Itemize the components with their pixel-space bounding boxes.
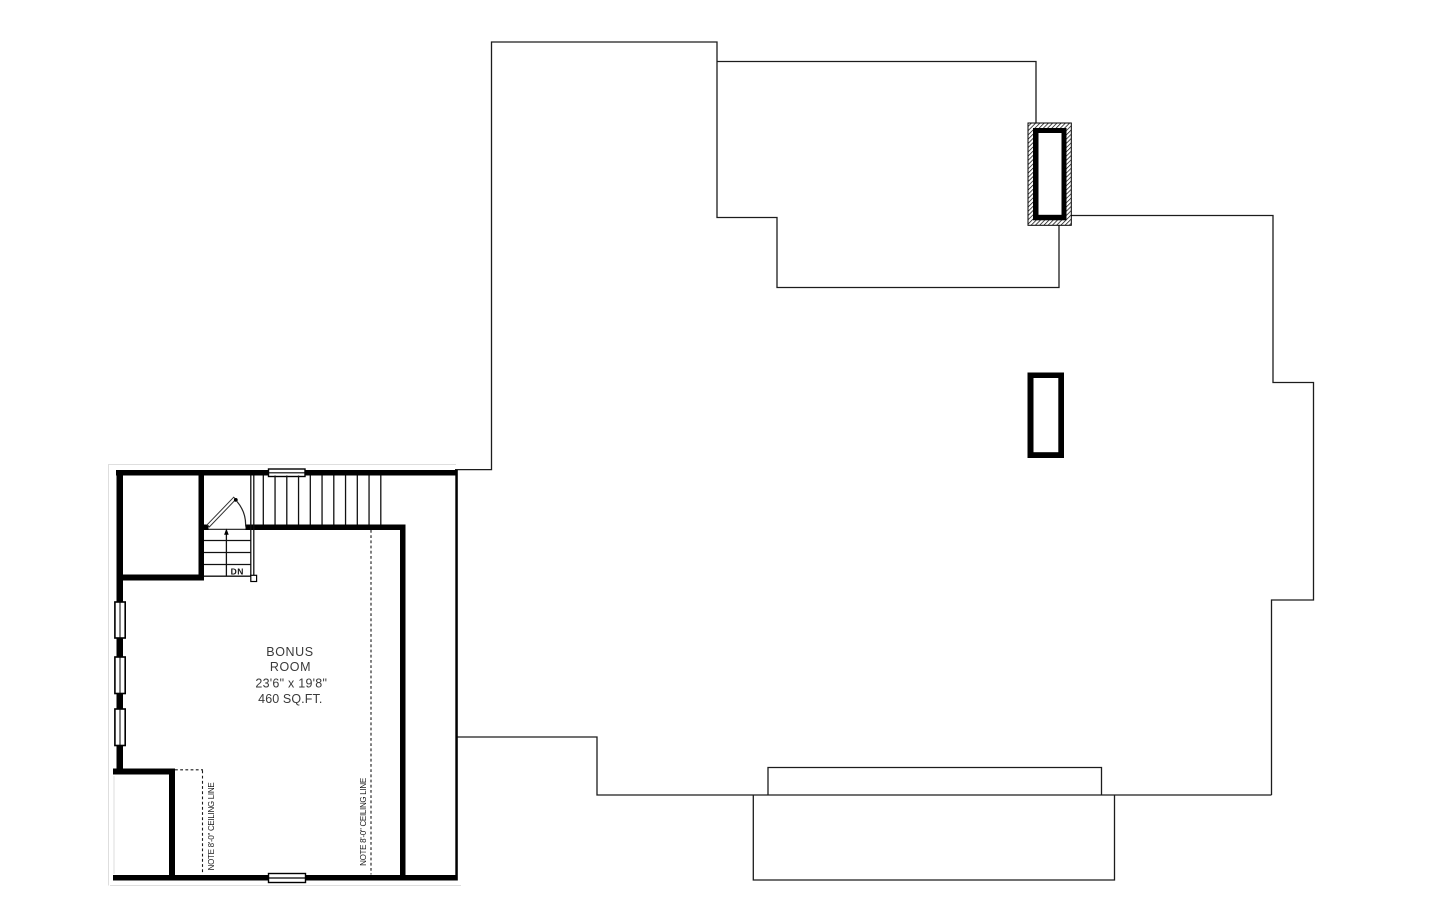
svg-text:DN: DN — [231, 567, 244, 577]
svg-text:NOTE 8'-0" CEILING LINE: NOTE 8'-0" CEILING LINE — [359, 778, 368, 866]
svg-text:23'6" x 19'8": 23'6" x 19'8" — [255, 677, 327, 691]
svg-text:ROOM: ROOM — [270, 660, 311, 674]
svg-text:460 SQ.FT.: 460 SQ.FT. — [258, 692, 322, 706]
svg-text:NOTE 8'-0" CEILING LINE: NOTE 8'-0" CEILING LINE — [207, 783, 216, 871]
svg-text:BONUS: BONUS — [266, 645, 313, 659]
